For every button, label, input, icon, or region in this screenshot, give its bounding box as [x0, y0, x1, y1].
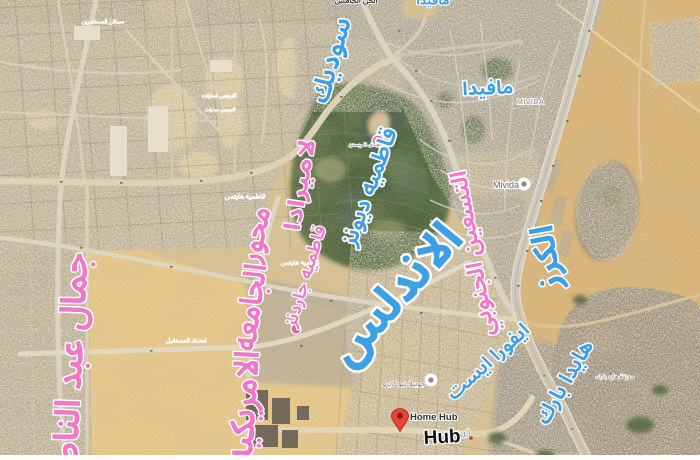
svg-text:Home Hub: Home Hub	[410, 412, 458, 423]
svg-text:Hub: Hub	[423, 426, 461, 449]
svg-text:Mivida: Mivida	[493, 180, 519, 190]
svg-text:MIVIDA: MIVIDA	[517, 99, 544, 106]
svg-text:all: all	[460, 428, 471, 440]
